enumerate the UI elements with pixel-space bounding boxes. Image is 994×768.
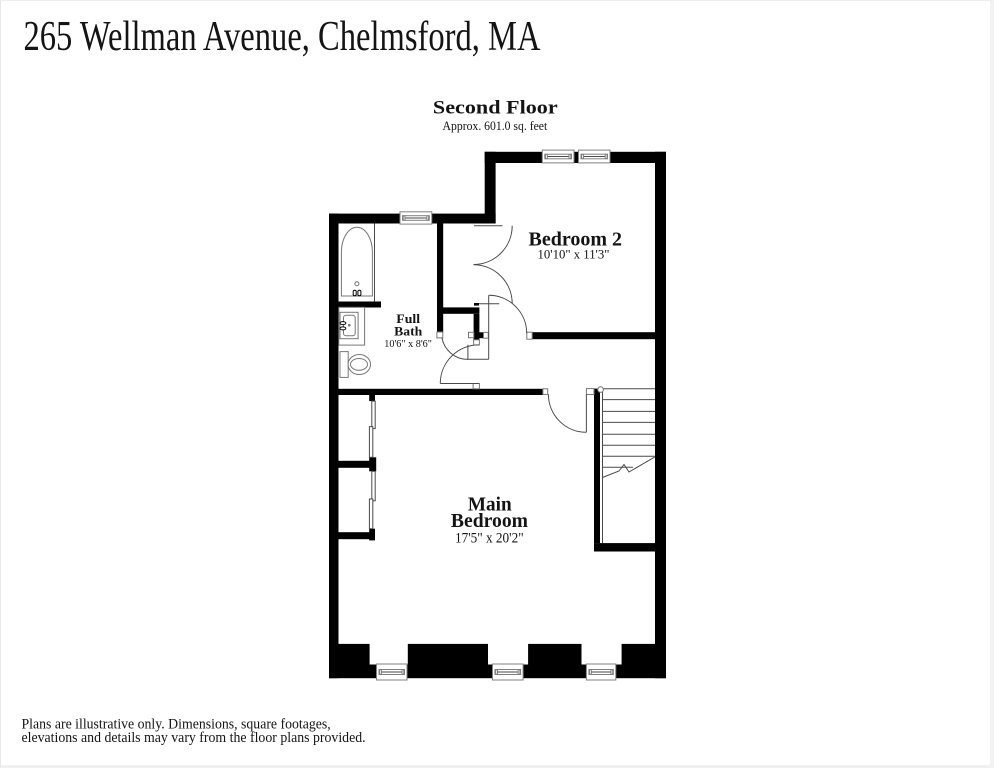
svg-text:Second Floor: Second Floor [433,99,558,119]
svg-text:Approx. 601.0 sq. feet: Approx. 601.0 sq. feet [443,119,548,133]
svg-text:Bath: Bath [394,323,423,338]
svg-text:17'5" x 20'2": 17'5" x 20'2" [455,531,524,547]
svg-text:10'6" x 8'6": 10'6" x 8'6" [384,338,432,350]
svg-text:10'10" x 11'3": 10'10" x 11'3" [538,246,610,261]
svg-text:Bedroom: Bedroom [451,511,528,532]
svg-text:elevations and details may var: elevations and details may vary from the… [22,730,366,746]
svg-text:265 Wellman Avenue, Chelmsford: 265 Wellman Avenue, Chelmsford, MA [24,14,542,60]
